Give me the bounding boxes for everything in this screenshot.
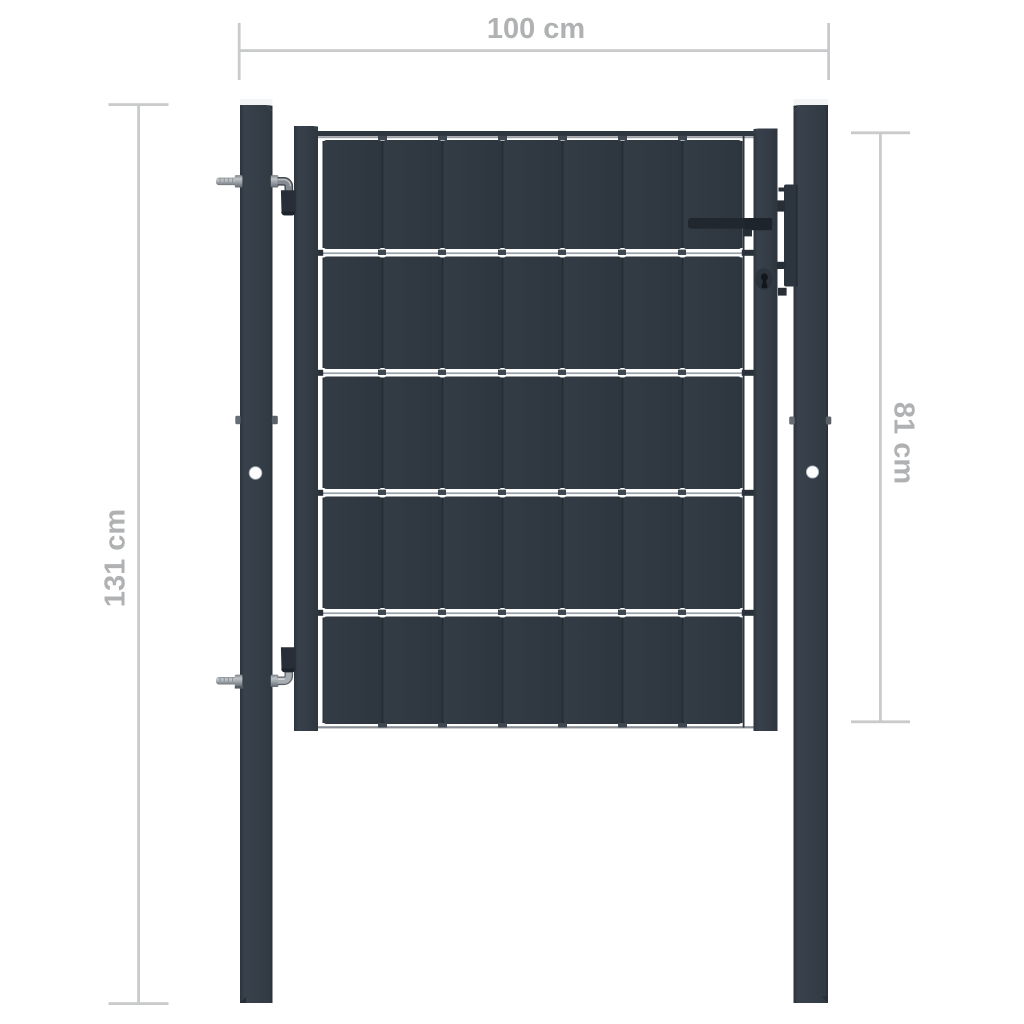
svg-text:131 cm: 131 cm <box>100 509 132 607</box>
svg-text:81 cm: 81 cm <box>888 402 920 484</box>
svg-text:100 cm: 100 cm <box>487 13 585 45</box>
